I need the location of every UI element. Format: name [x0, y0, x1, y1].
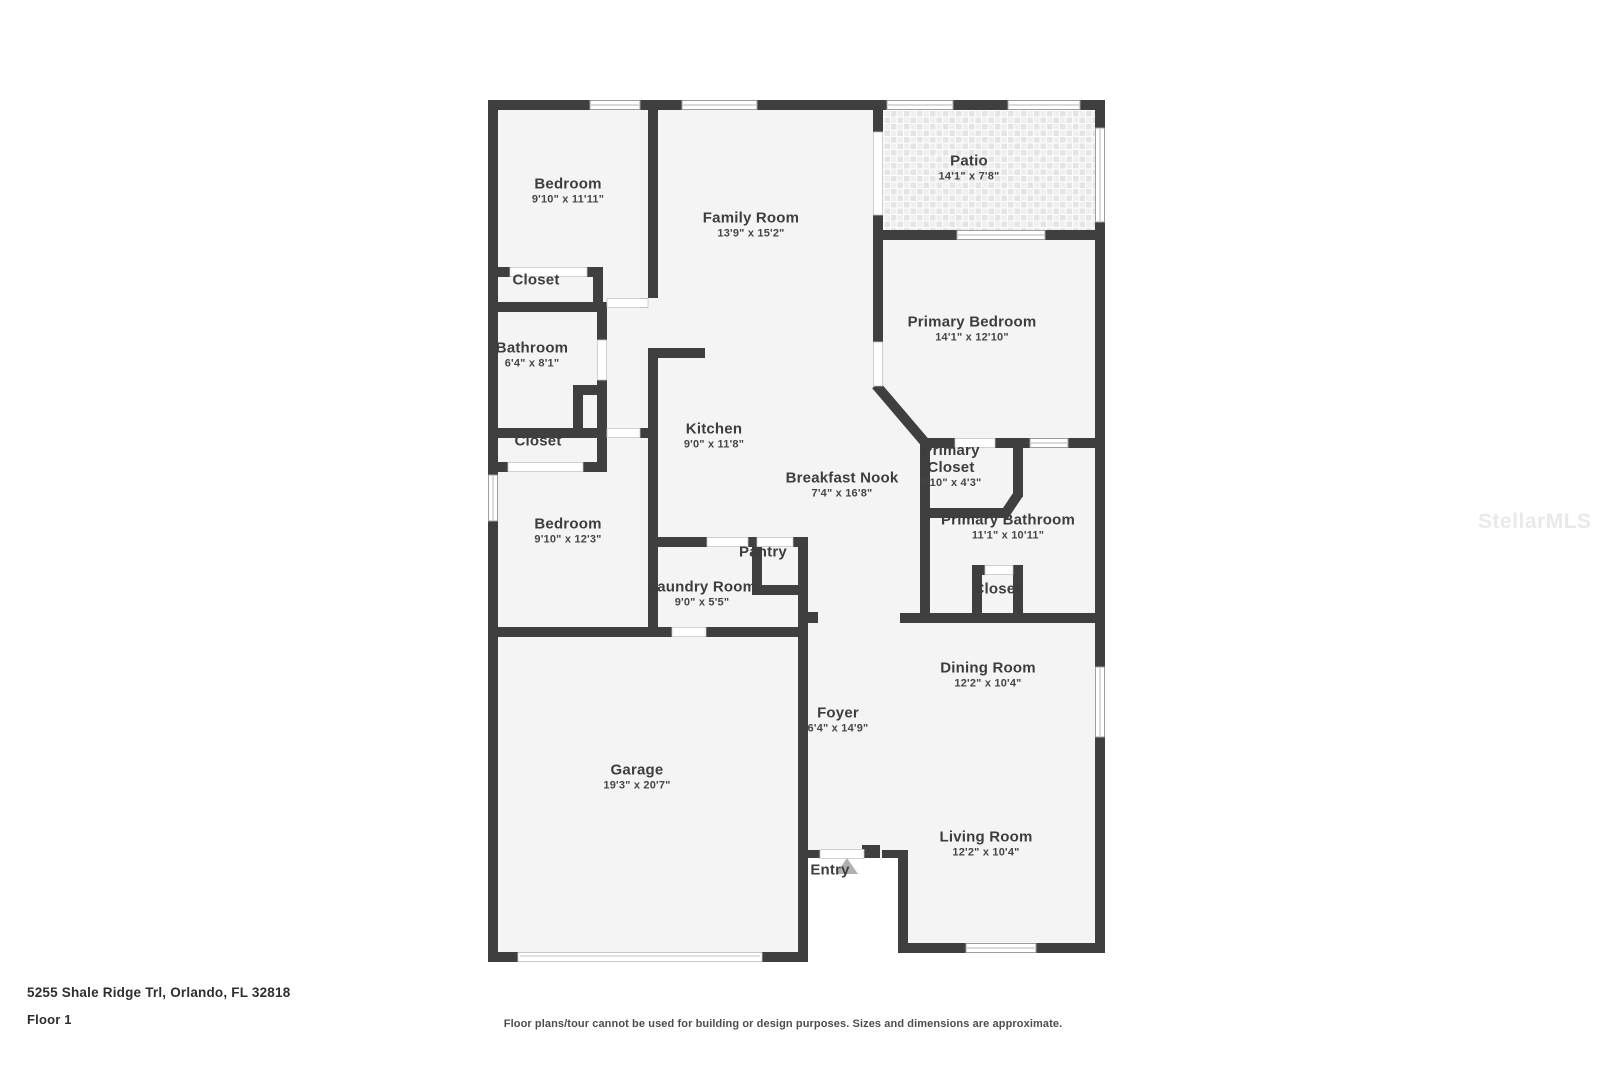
floorplan-page: Bedroom9'10" x 11'11" Family Room13'9" x…	[0, 0, 1600, 1067]
entry-arrow-icon	[836, 858, 858, 874]
garage-door	[518, 953, 762, 962]
floorplan-svg	[0, 0, 1600, 1067]
address-text: 5255 Shale Ridge Trl, Orlando, FL 32818	[27, 985, 290, 1000]
patio-tiles	[883, 110, 1095, 230]
floor-label: Floor 1	[27, 1012, 72, 1027]
disclaimer-text: Floor plans/tour cannot be used for buil…	[504, 1018, 1062, 1030]
